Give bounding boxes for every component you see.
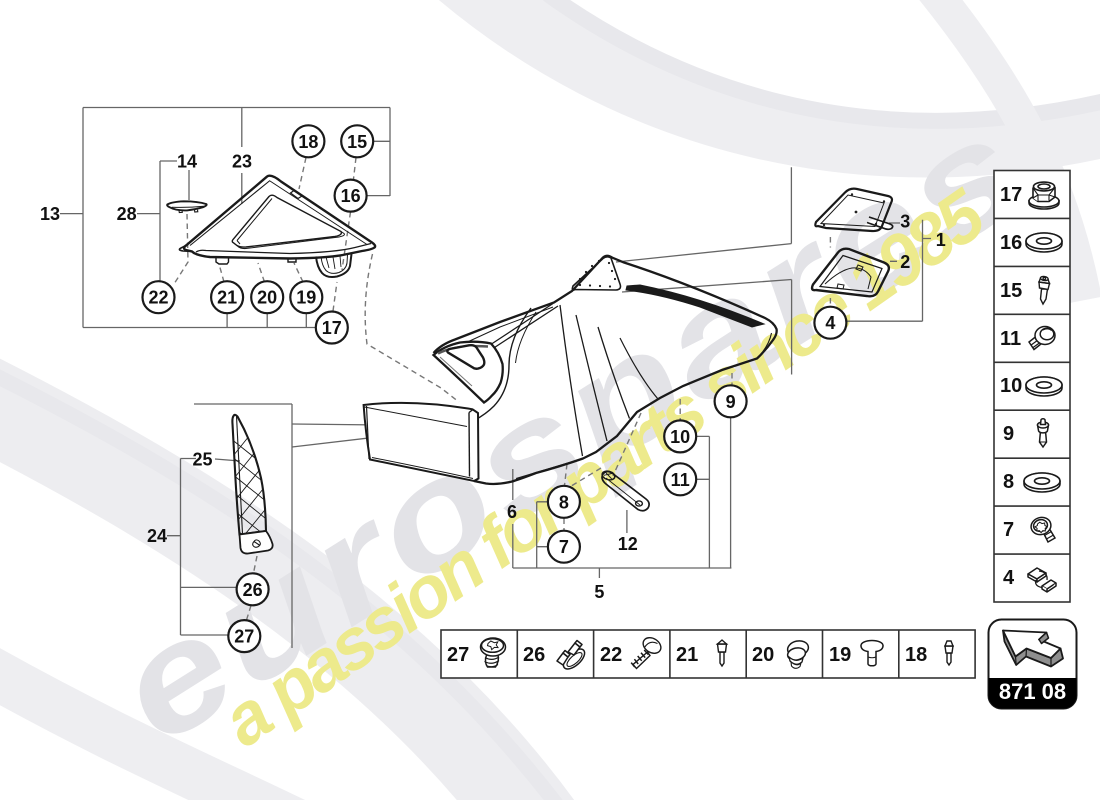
svg-text:9: 9 [1003, 423, 1014, 445]
svg-text:16: 16 [341, 186, 361, 206]
svg-text:21: 21 [676, 644, 698, 666]
svg-text:9: 9 [726, 392, 736, 412]
svg-text:18: 18 [298, 132, 318, 152]
svg-text:4: 4 [825, 313, 835, 333]
svg-text:26: 26 [243, 580, 263, 600]
svg-text:2: 2 [900, 252, 910, 272]
svg-text:24: 24 [147, 526, 167, 546]
svg-text:26: 26 [523, 644, 545, 666]
svg-text:19: 19 [296, 288, 316, 308]
svg-text:1: 1 [936, 230, 946, 250]
svg-text:8: 8 [1003, 471, 1014, 493]
svg-text:11: 11 [671, 470, 690, 490]
svg-text:871 08: 871 08 [999, 679, 1066, 704]
svg-text:22: 22 [148, 288, 168, 308]
svg-text:6: 6 [507, 502, 517, 522]
svg-text:8: 8 [559, 492, 569, 512]
svg-text:19: 19 [829, 644, 851, 666]
svg-text:10: 10 [1000, 375, 1022, 397]
svg-text:22: 22 [600, 644, 622, 666]
svg-text:28: 28 [117, 204, 137, 224]
svg-text:12: 12 [618, 534, 638, 554]
svg-text:3: 3 [900, 211, 910, 231]
svg-text:20: 20 [257, 288, 277, 308]
svg-text:25: 25 [192, 450, 212, 470]
svg-text:20: 20 [752, 644, 774, 666]
svg-text:13: 13 [40, 204, 60, 224]
svg-text:4: 4 [1003, 567, 1015, 589]
svg-text:27: 27 [447, 644, 469, 666]
svg-text:27: 27 [234, 627, 254, 647]
svg-text:23: 23 [232, 152, 252, 172]
svg-text:15: 15 [347, 132, 367, 152]
svg-text:17: 17 [322, 318, 342, 338]
svg-text:21: 21 [217, 288, 237, 308]
svg-text:7: 7 [1003, 519, 1014, 541]
svg-text:10: 10 [670, 427, 690, 447]
svg-text:16: 16 [1000, 232, 1022, 254]
svg-text:7: 7 [559, 537, 569, 557]
svg-text:14: 14 [177, 152, 197, 172]
svg-text:11: 11 [1000, 328, 1021, 350]
svg-text:17: 17 [1000, 184, 1022, 206]
svg-text:5: 5 [594, 582, 604, 602]
svg-text:18: 18 [905, 644, 927, 666]
svg-text:15: 15 [1000, 280, 1022, 302]
